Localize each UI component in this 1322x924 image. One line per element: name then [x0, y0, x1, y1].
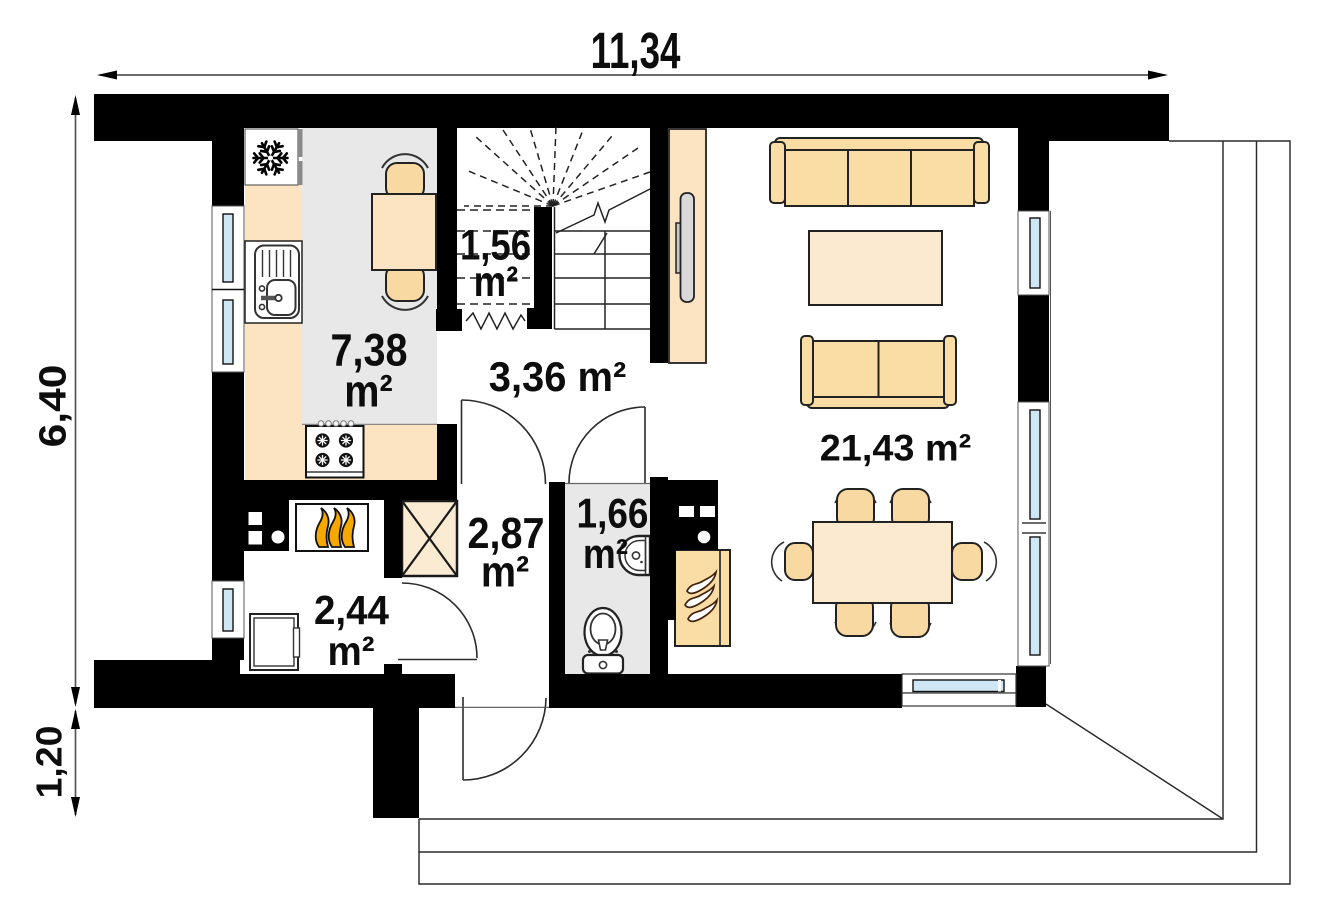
svg-text:m²: m²	[481, 547, 529, 596]
svg-text:1,20: 1,20	[29, 726, 69, 799]
svg-text:m²: m²	[327, 629, 374, 674]
svg-text:2,44: 2,44	[314, 588, 389, 633]
svg-text:m²: m²	[583, 531, 628, 578]
svg-text:21,43 m²: 21,43 m²	[820, 427, 972, 469]
svg-text:m²: m²	[474, 258, 519, 305]
svg-text:m²: m²	[344, 366, 392, 416]
svg-text:6,40: 6,40	[31, 365, 74, 448]
svg-text:11,34: 11,34	[591, 23, 681, 79]
svg-text:3,36 m²: 3,36 m²	[489, 353, 626, 400]
